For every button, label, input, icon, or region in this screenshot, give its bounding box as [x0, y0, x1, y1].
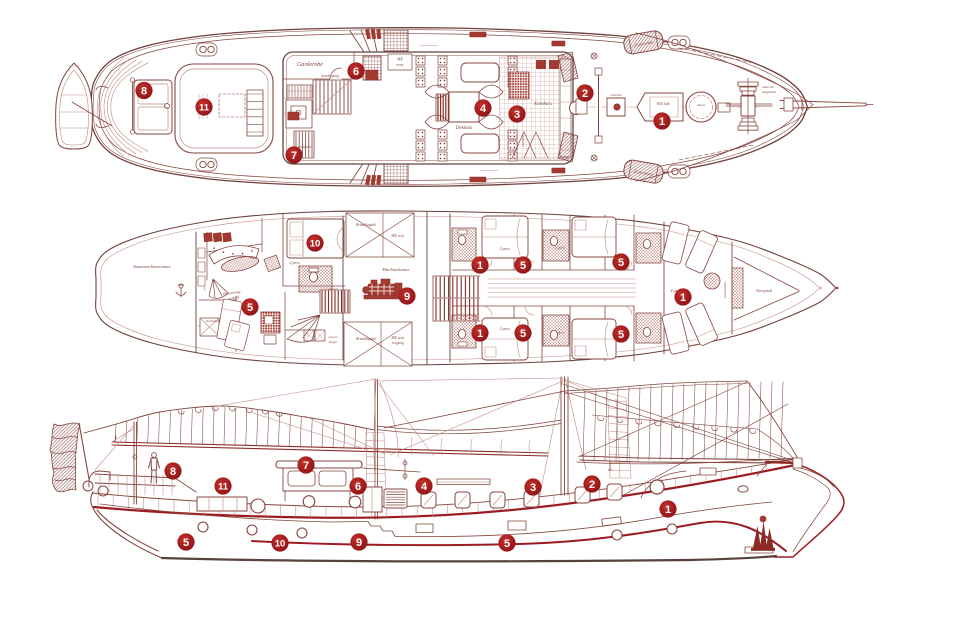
svg-text:Garderobe: Garderobe	[297, 62, 323, 68]
svg-text:1: 1	[680, 292, 686, 304]
svg-text:1: 1	[665, 504, 671, 516]
svg-text:5: 5	[504, 538, 510, 550]
svg-text:9: 9	[356, 537, 362, 549]
svg-text:Branddagluik: Branddagluik	[356, 223, 376, 227]
svg-text:MK: MK	[396, 57, 403, 62]
svg-text:navigatie: navigatie	[298, 145, 312, 149]
svg-text:3: 3	[530, 482, 536, 494]
svg-text:2 pers.: 2 pers.	[500, 246, 511, 251]
svg-text:8: 8	[141, 86, 147, 98]
svg-text:7: 7	[291, 150, 297, 162]
svg-text:5: 5	[520, 328, 526, 340]
svg-text:6: 6	[355, 481, 361, 493]
svg-text:5: 5	[247, 302, 253, 314]
svg-text:koppelbak: koppelbak	[762, 90, 776, 94]
svg-text:2: 2	[582, 88, 588, 100]
svg-text:toegang: toegang	[392, 341, 404, 345]
svg-text:8: 8	[170, 466, 176, 478]
svg-text:1: 1	[659, 116, 665, 128]
svg-text:WD luik: WD luik	[656, 101, 669, 106]
svg-text:2 pers.: 2 pers.	[290, 260, 301, 265]
svg-text:5: 5	[618, 329, 624, 341]
svg-text:diesel: diesel	[697, 103, 705, 107]
svg-text:MK vent.: MK vent.	[390, 336, 404, 340]
svg-text:10: 10	[275, 538, 286, 549]
svg-text:10: 10	[310, 238, 321, 249]
svg-text:wasern: wasern	[328, 335, 338, 339]
svg-text:1: 1	[477, 260, 483, 272]
svg-text:5: 5	[520, 260, 526, 272]
svg-text:11: 11	[199, 102, 210, 113]
svg-text:11: 11	[218, 481, 229, 492]
svg-text:Machinekamer: Machinekamer	[381, 267, 410, 272]
svg-text:vent.: vent.	[396, 62, 404, 67]
svg-text:6: 6	[353, 66, 359, 78]
svg-text:Branddagluik: Branddagluik	[356, 337, 376, 341]
svg-text:2: 2	[589, 479, 595, 491]
svg-text:Kombuis: Kombuis	[533, 102, 552, 107]
svg-text:droger: droger	[329, 340, 338, 344]
svg-text:1: 1	[477, 328, 483, 340]
svg-text:9: 9	[404, 291, 410, 303]
svg-text:waschruimte: waschruimte	[723, 281, 727, 299]
svg-text:Dekhuis: Dekhuis	[455, 126, 472, 131]
svg-text:op/neer: op/neer	[328, 287, 338, 291]
svg-text:voorluik: voorluik	[610, 93, 622, 97]
svg-text:4: 4	[421, 481, 428, 493]
svg-text:7: 7	[303, 460, 309, 472]
svg-text:bootsmkast: bootsmkast	[206, 319, 220, 323]
svg-text:koelkast: koelkast	[521, 134, 525, 146]
svg-text:Voorpiek: Voorpiek	[756, 288, 773, 293]
svg-text:5: 5	[618, 257, 624, 269]
svg-text:3: 3	[514, 109, 520, 121]
svg-text:4: 4	[480, 103, 487, 115]
svg-text:MK vent.: MK vent.	[390, 234, 404, 238]
svg-text:5: 5	[183, 537, 189, 549]
svg-text:Stuurmachineruimte: Stuurmachineruimte	[133, 264, 171, 269]
svg-text:ankerlier: ankerlier	[762, 85, 775, 89]
svg-text:2 pers.: 2 pers.	[500, 326, 511, 331]
